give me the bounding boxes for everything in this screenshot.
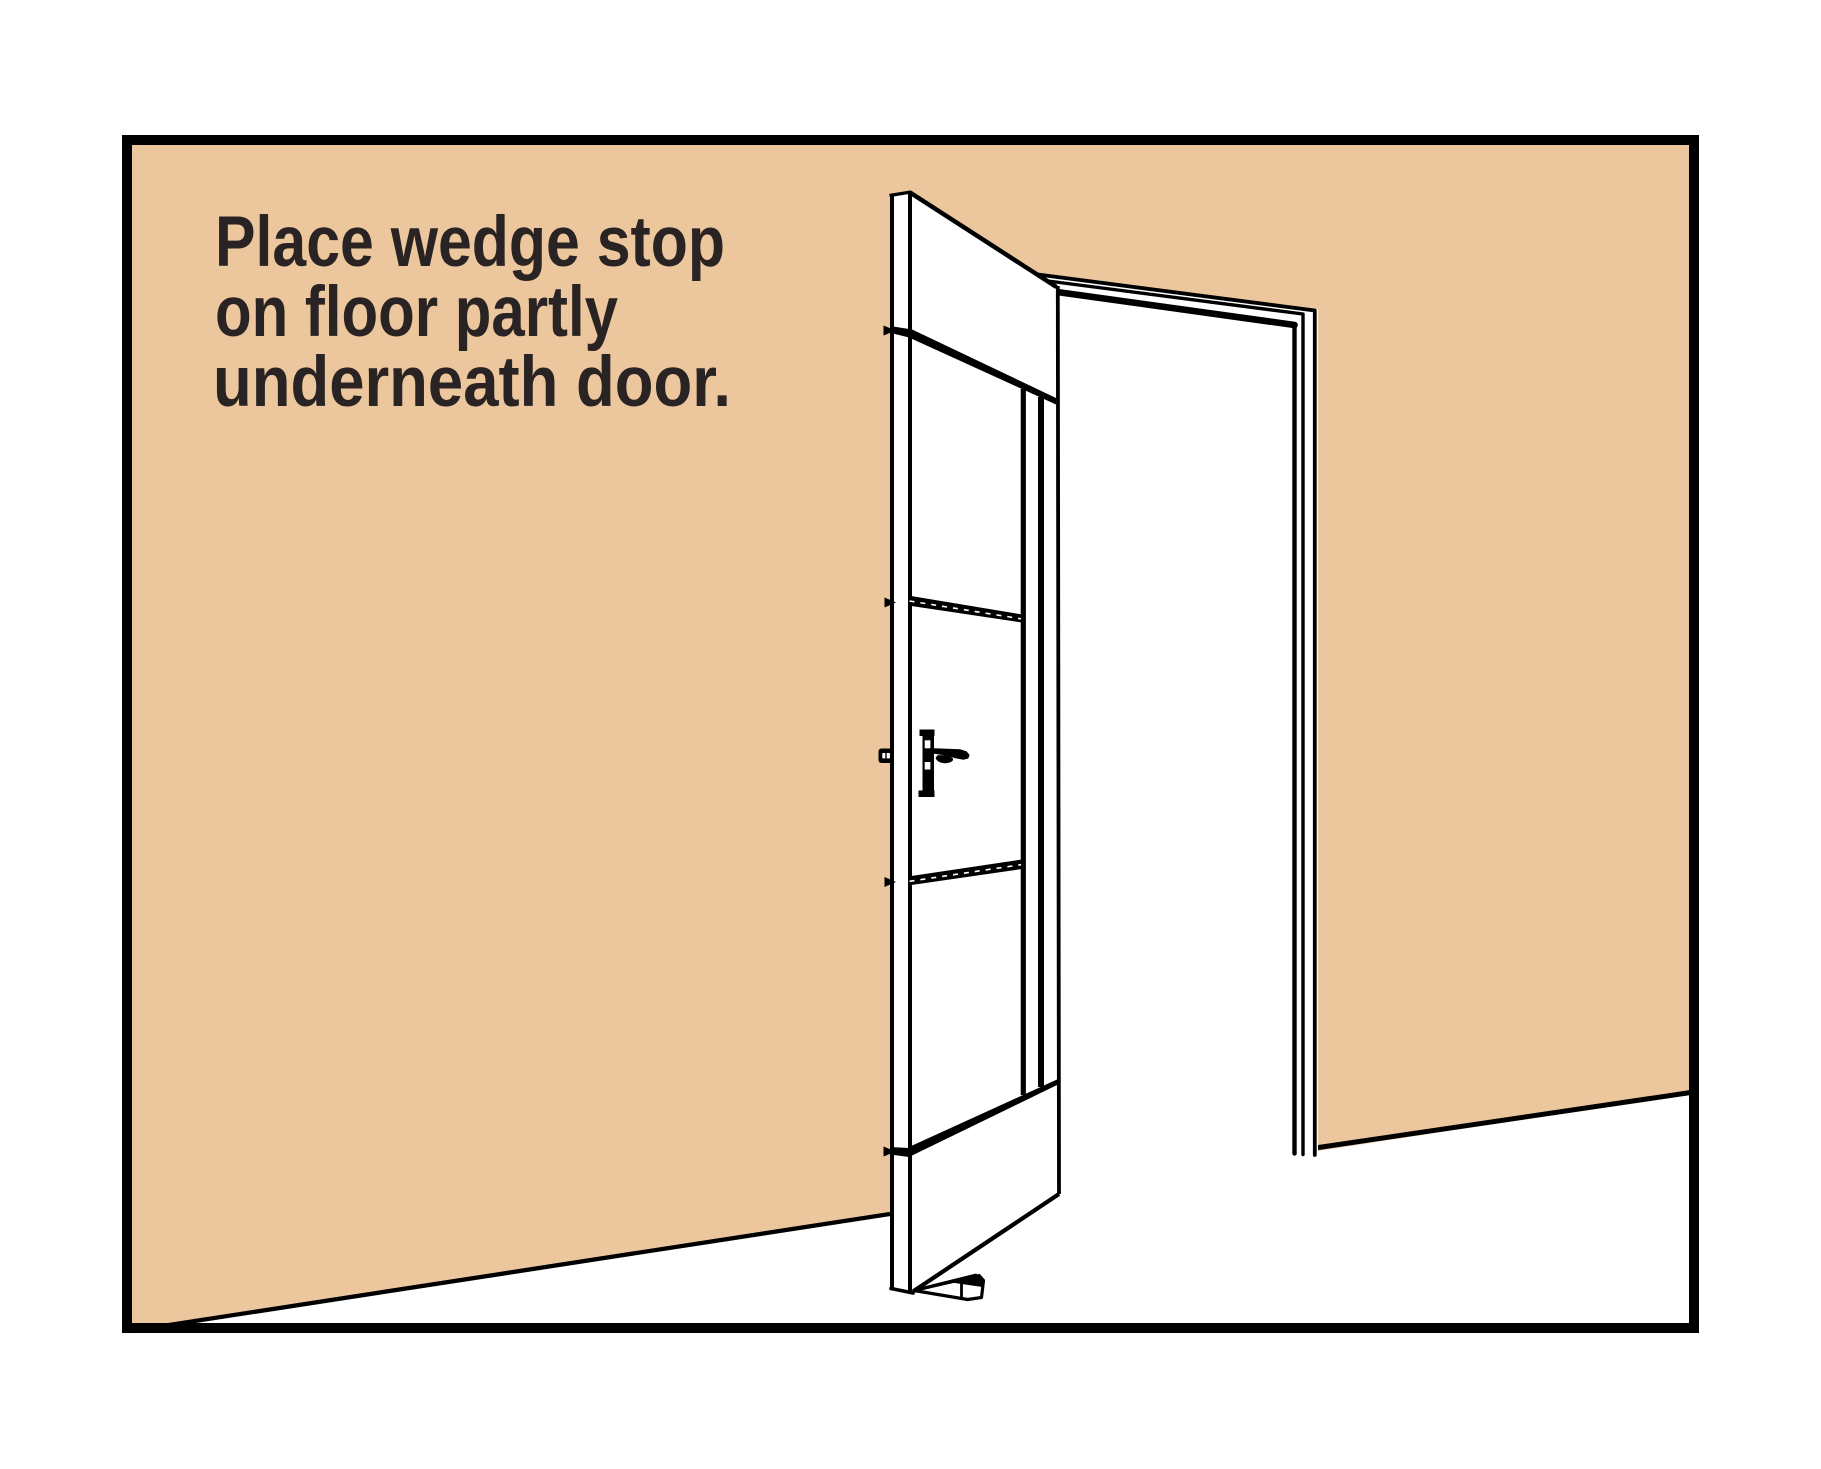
svg-text:Place wedge stop: Place wedge stop — [215, 203, 725, 282]
svg-text:underneath door.: underneath door. — [213, 343, 731, 422]
svg-text:on floor partly: on floor partly — [215, 273, 618, 352]
